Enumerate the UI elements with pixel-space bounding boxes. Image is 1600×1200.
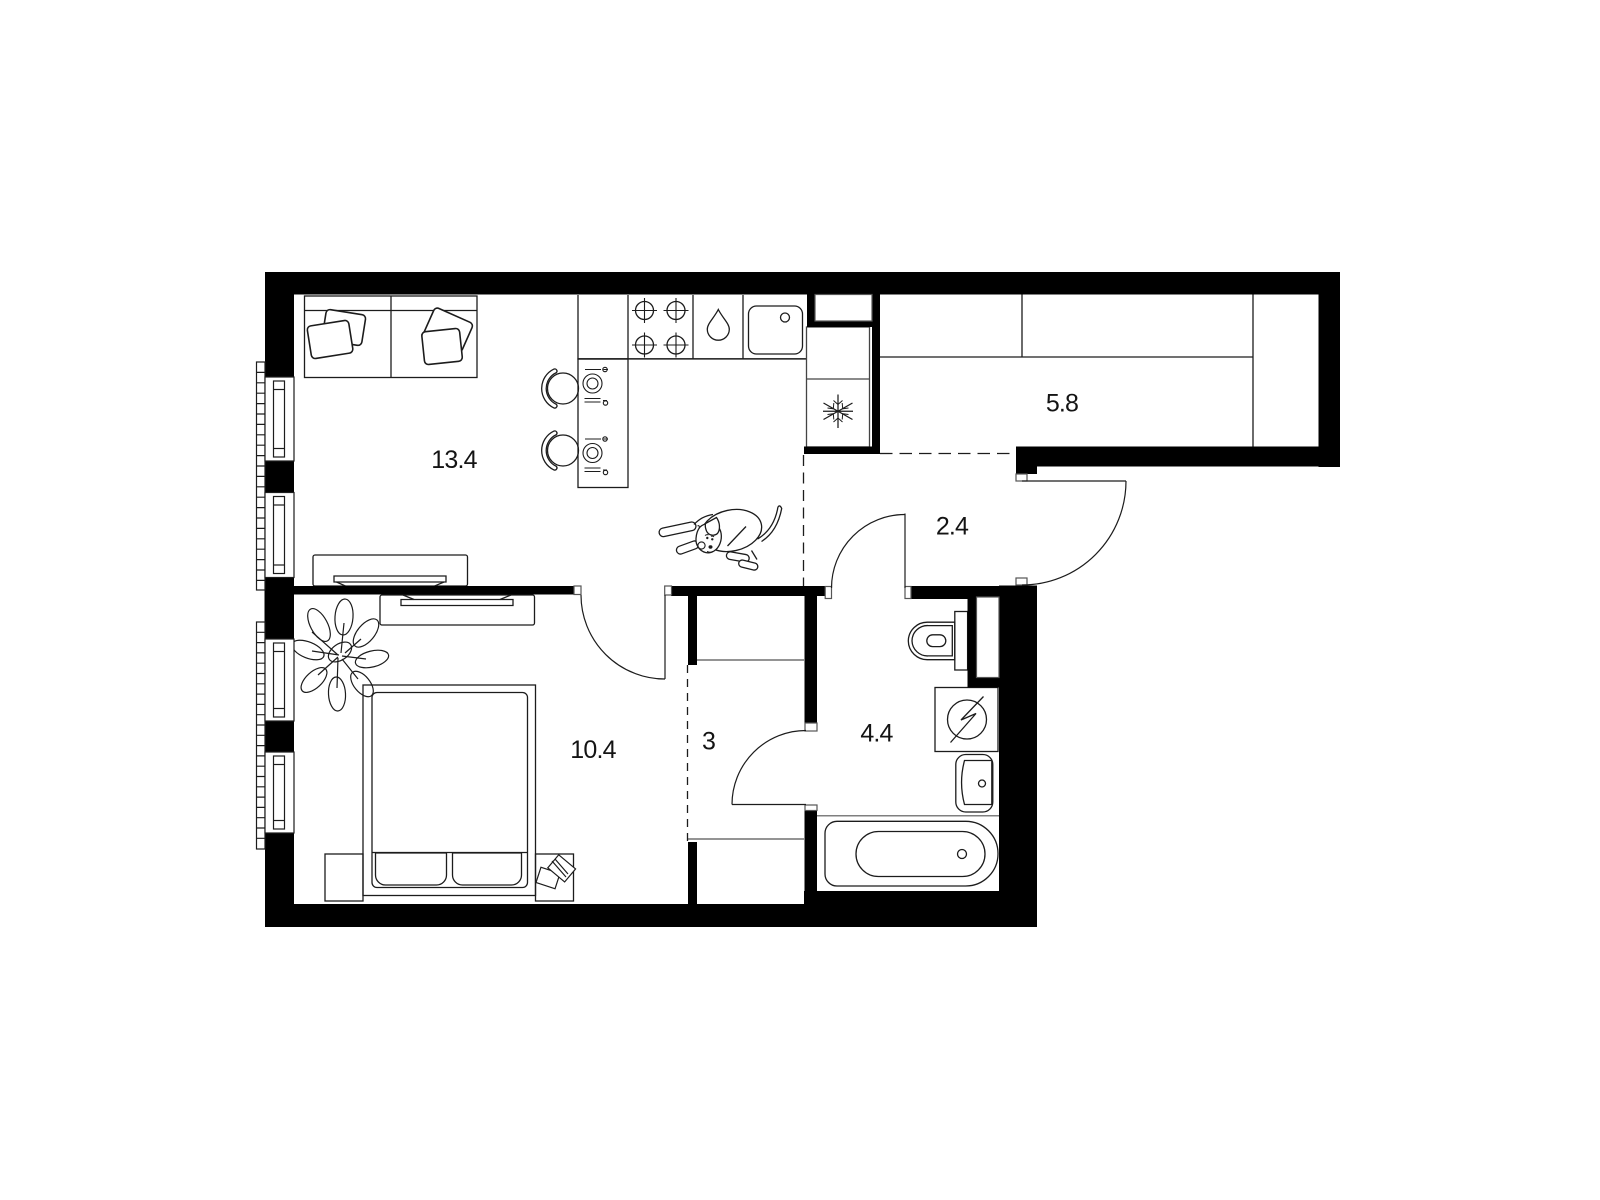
svg-text:13.4: 13.4 xyxy=(431,446,477,474)
svg-text:2.4: 2.4 xyxy=(936,513,969,541)
svg-text:4.4: 4.4 xyxy=(860,720,893,748)
svg-text:10.4: 10.4 xyxy=(570,736,616,764)
svg-text:3: 3 xyxy=(702,728,715,756)
svg-text:5.8: 5.8 xyxy=(1046,390,1078,418)
